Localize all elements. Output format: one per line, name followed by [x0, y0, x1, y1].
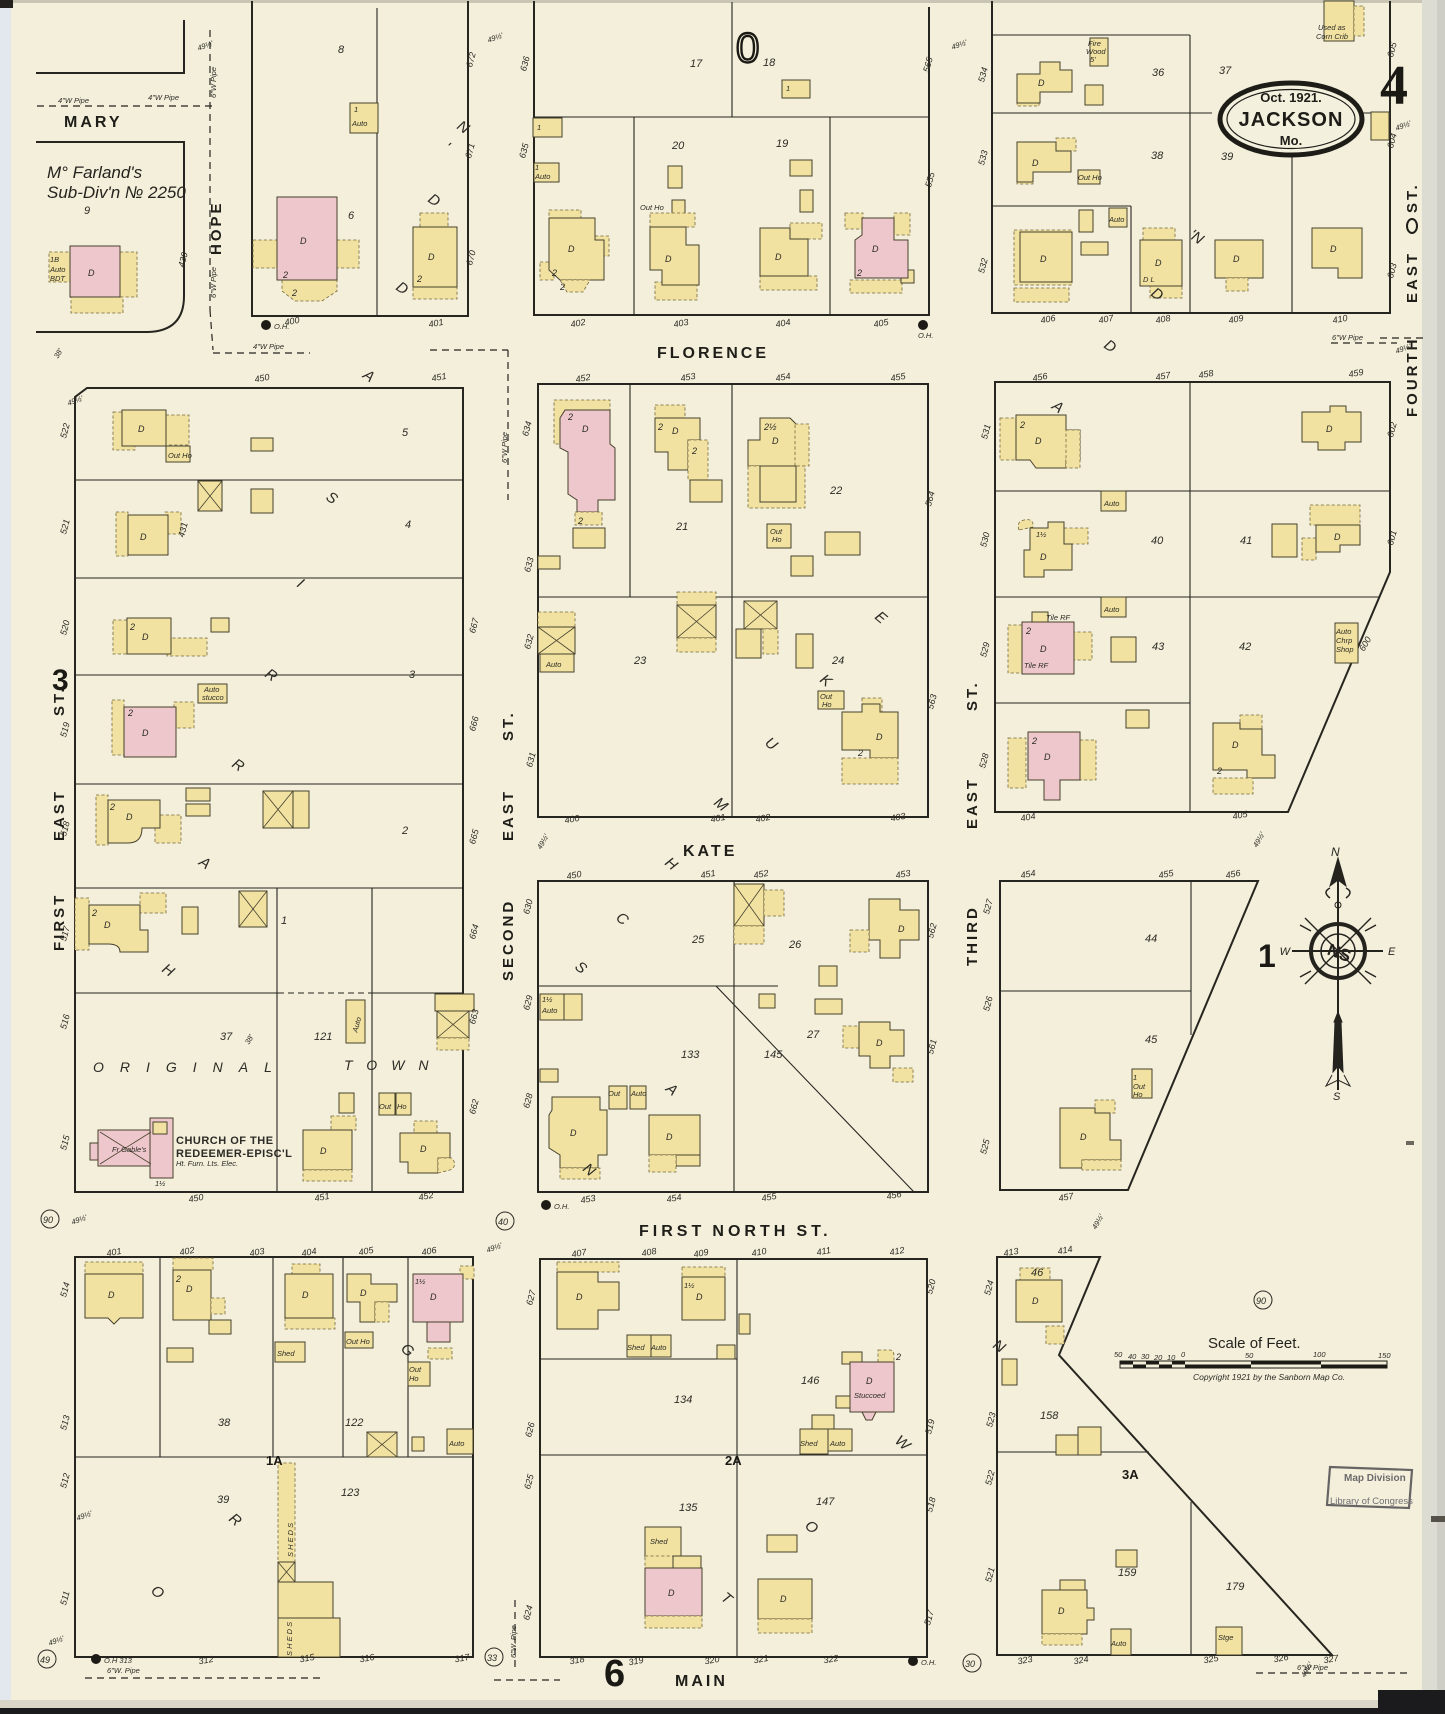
svg-text:1: 1 — [354, 105, 358, 114]
svg-text:2: 2 — [1019, 420, 1025, 430]
svg-text:D: D — [1334, 532, 1341, 542]
svg-text:D: D — [1155, 258, 1162, 268]
svg-text:D: D — [668, 1588, 675, 1598]
svg-text:19: 19 — [776, 138, 788, 150]
svg-text:50: 50 — [1245, 1351, 1254, 1360]
svg-text:40: 40 — [1128, 1352, 1137, 1361]
svg-text:FIRST NORTH ST.: FIRST NORTH ST. — [639, 1223, 832, 1240]
svg-text:2: 2 — [657, 422, 663, 432]
svg-text:Chrp: Chrp — [1336, 636, 1352, 645]
svg-text:1B: 1B — [50, 255, 59, 264]
svg-text:Ht. Furn. Lts. Elec.: Ht. Furn. Lts. Elec. — [176, 1159, 238, 1168]
svg-text:Auto: Auto — [1103, 605, 1119, 614]
svg-text:1½: 1½ — [1036, 530, 1047, 539]
svg-text:N: N — [1331, 845, 1340, 859]
svg-text:18: 18 — [763, 57, 776, 69]
svg-text:D: D — [866, 1376, 873, 1386]
svg-text:D: D — [772, 436, 779, 446]
svg-text:O.H.: O.H. — [554, 1202, 569, 1211]
svg-text:8: 8 — [338, 44, 345, 56]
svg-text:Tile RF: Tile RF — [1024, 661, 1049, 670]
svg-text:S: S — [1333, 1091, 1341, 1103]
svg-text:EAST: EAST — [1404, 251, 1421, 303]
svg-text:Out Ho: Out Ho — [640, 203, 664, 212]
svg-text:4"W Pipe: 4"W Pipe — [58, 96, 89, 105]
svg-text:Map Division: Map Division — [1344, 1473, 1406, 1484]
svg-text:Corn Crib: Corn Crib — [1316, 32, 1348, 41]
svg-text:Auto: Auto — [49, 265, 65, 274]
svg-text:S H E D S: S H E D S — [285, 1622, 294, 1656]
svg-text:Auto: Auto — [448, 1439, 464, 1448]
svg-text:6"W Pipe: 6"W Pipe — [1297, 1663, 1328, 1672]
svg-text:D: D — [1326, 424, 1333, 434]
svg-text:40: 40 — [1151, 535, 1164, 547]
svg-text:37: 37 — [220, 1031, 233, 1043]
svg-text:Out: Out — [379, 1102, 392, 1111]
svg-text:6: 6 — [604, 1653, 625, 1695]
svg-text:D: D — [872, 244, 879, 254]
svg-text:30: 30 — [965, 1659, 975, 1669]
svg-text:121: 121 — [314, 1031, 332, 1043]
svg-text:ST.: ST. — [500, 710, 517, 741]
svg-text:CHURCH OF THE: CHURCH OF THE — [176, 1135, 274, 1147]
svg-text:2: 2 — [1025, 626, 1031, 636]
svg-text:Auto: Auto — [541, 1006, 557, 1015]
svg-text:45: 45 — [1145, 1034, 1158, 1046]
svg-text:38: 38 — [218, 1417, 231, 1429]
svg-text:5': 5' — [1090, 55, 1096, 64]
svg-text:D: D — [428, 252, 435, 262]
svg-text:D: D — [1032, 158, 1039, 168]
svg-text:ST.: ST. — [964, 680, 981, 711]
svg-text:41: 41 — [1240, 535, 1252, 547]
svg-text:D: D — [1035, 436, 1042, 446]
svg-text:6: 6 — [348, 210, 355, 222]
svg-text:2: 2 — [282, 270, 288, 280]
svg-text:2: 2 — [401, 825, 408, 837]
svg-text:D: D — [780, 1594, 787, 1604]
svg-text:2: 2 — [857, 748, 863, 758]
svg-text:D: D — [876, 732, 883, 742]
svg-text:Ho: Ho — [1133, 1090, 1143, 1099]
svg-text:134: 134 — [674, 1394, 692, 1406]
svg-text:159: 159 — [1118, 1567, 1136, 1579]
svg-text:6"W. Pipe: 6"W. Pipe — [509, 1625, 518, 1658]
svg-text:MARY: MARY — [64, 114, 123, 131]
svg-text:D: D — [582, 424, 589, 434]
svg-text:Ho: Ho — [409, 1374, 419, 1383]
svg-text:2: 2 — [559, 282, 565, 292]
svg-text:6"W. Pipe: 6"W. Pipe — [107, 1666, 140, 1675]
svg-text:E: E — [1388, 946, 1396, 958]
svg-text:1A: 1A — [266, 1453, 283, 1468]
svg-text:Auto: Auto — [650, 1343, 666, 1352]
svg-text:39: 39 — [217, 1494, 229, 1506]
svg-text:O.H.: O.H. — [921, 1658, 936, 1667]
svg-text:4: 4 — [1380, 55, 1408, 117]
svg-text:TOWN: TOWN — [344, 1057, 443, 1073]
svg-text:Stge: Stge — [1218, 1633, 1233, 1642]
svg-text:D: D — [126, 812, 133, 822]
svg-text:133: 133 — [681, 1049, 700, 1061]
svg-text:D: D — [186, 1284, 193, 1294]
svg-text:27: 27 — [806, 1029, 820, 1041]
svg-text:D: D — [898, 924, 905, 934]
svg-text:D: D — [1233, 254, 1240, 264]
svg-text:Stuccoed: Stuccoed — [854, 1391, 886, 1400]
svg-text:90: 90 — [43, 1215, 53, 1225]
svg-text:6"W Pipe: 6"W Pipe — [209, 67, 218, 98]
svg-text:D: D — [665, 254, 672, 264]
svg-text:2: 2 — [895, 1352, 901, 1362]
svg-text:135: 135 — [679, 1502, 698, 1514]
svg-text:100: 100 — [1313, 1350, 1326, 1359]
svg-text:Auto: Auto — [534, 172, 550, 181]
svg-text:1½: 1½ — [415, 1277, 426, 1286]
svg-text:1: 1 — [786, 84, 790, 93]
svg-text:Out Ho: Out Ho — [1078, 173, 1102, 182]
svg-text:Copyright 1921 by the Sanborn: Copyright 1921 by the Sanborn Map Co. — [1193, 1372, 1345, 1382]
svg-text:W: W — [1280, 946, 1292, 958]
svg-text:Auto: Auto — [829, 1439, 845, 1448]
svg-text:JACKSON: JACKSON — [1239, 109, 1344, 131]
svg-text:Sub-Div'n № 2250: Sub-Div'n № 2250 — [47, 183, 186, 202]
svg-text:D: D — [576, 1292, 583, 1302]
svg-text:O.H.: O.H. — [918, 331, 933, 340]
svg-text:50: 50 — [1114, 1350, 1123, 1359]
svg-text:O.H 313: O.H 313 — [104, 1656, 133, 1665]
svg-text:Mo.: Mo. — [1280, 133, 1302, 148]
svg-text:BDT: BDT — [50, 274, 66, 283]
svg-text:MAIN: MAIN — [675, 1673, 728, 1690]
svg-text:HOPE: HOPE — [208, 200, 225, 255]
svg-text:2: 2 — [91, 908, 97, 918]
svg-text:6"W Pipe: 6"W Pipe — [500, 432, 509, 463]
svg-text:179: 179 — [1226, 1581, 1244, 1593]
svg-text:D: D — [430, 1292, 437, 1302]
svg-text:1: 1 — [537, 123, 541, 132]
svg-text:Auto: Auto — [351, 119, 367, 128]
svg-text:36: 36 — [1152, 67, 1165, 79]
svg-text:Fr Gable's: Fr Gable's — [112, 1145, 147, 1154]
svg-text:D: D — [876, 1038, 883, 1048]
svg-text:3: 3 — [409, 669, 416, 681]
svg-text:22: 22 — [829, 485, 842, 497]
svg-text:25: 25 — [691, 934, 705, 946]
svg-text:Used as: Used as — [1318, 23, 1346, 32]
svg-text:D: D — [88, 268, 95, 278]
svg-text:2½: 2½ — [763, 422, 777, 432]
svg-text:23: 23 — [633, 655, 647, 667]
svg-text:2: 2 — [127, 708, 133, 718]
svg-text:Auto: Auto — [630, 1089, 646, 1098]
svg-text:D: D — [1058, 1606, 1065, 1616]
svg-text:6"W Pipe: 6"W Pipe — [1332, 333, 1363, 342]
svg-text:43: 43 — [1152, 641, 1165, 653]
svg-text:49: 49 — [40, 1655, 50, 1665]
svg-text:D: D — [1330, 244, 1337, 254]
svg-text:D: D — [1044, 752, 1051, 762]
svg-text:D: D — [1038, 78, 1045, 88]
svg-text:30: 30 — [1141, 1352, 1150, 1361]
svg-text:Auto: Auto — [1335, 627, 1351, 636]
svg-text:D: D — [1040, 254, 1047, 264]
svg-text:2: 2 — [1216, 766, 1222, 776]
svg-text:stucco: stucco — [202, 693, 224, 702]
svg-text:2: 2 — [109, 802, 115, 812]
svg-text:D: D — [142, 728, 149, 738]
svg-text:Auto: Auto — [1103, 499, 1119, 508]
svg-text:122: 122 — [345, 1417, 363, 1429]
svg-text:2A: 2A — [725, 1453, 742, 1468]
svg-text:D L: D L — [1143, 275, 1155, 284]
svg-text:2: 2 — [416, 274, 422, 284]
svg-text:Shed: Shed — [627, 1343, 645, 1352]
svg-text:1½: 1½ — [155, 1179, 166, 1188]
svg-text:1: 1 — [1258, 938, 1276, 974]
svg-text:Library of Congress: Library of Congress — [1330, 1496, 1413, 1507]
svg-text:39: 39 — [1221, 151, 1233, 163]
svg-text:146: 146 — [801, 1375, 820, 1387]
svg-text:Out: Out — [409, 1365, 422, 1374]
svg-text:D: D — [302, 1290, 309, 1300]
svg-text:D: D — [1080, 1132, 1087, 1142]
svg-text:D: D — [1232, 740, 1239, 750]
svg-text:EAST: EAST — [964, 777, 981, 829]
svg-text:D: D — [568, 244, 575, 254]
svg-text:9: 9 — [84, 205, 90, 217]
svg-text:D: D — [570, 1128, 577, 1138]
svg-text:44: 44 — [1145, 933, 1157, 945]
svg-text:3: 3 — [52, 664, 69, 697]
svg-text:KATE: KATE — [683, 843, 737, 860]
svg-text:S H E D S: S H E D S — [286, 1523, 295, 1557]
svg-text:Out Ho: Out Ho — [346, 1337, 370, 1346]
svg-text:Shed: Shed — [650, 1537, 668, 1546]
svg-text:46: 46 — [1031, 1267, 1044, 1279]
svg-text:D: D — [142, 632, 149, 642]
svg-text:Out: Out — [608, 1089, 621, 1098]
svg-text:D: D — [775, 252, 782, 262]
svg-text:M° Farland's: M° Farland's — [47, 163, 143, 182]
svg-text:1½: 1½ — [542, 995, 553, 1004]
svg-text:D: D — [672, 426, 679, 436]
svg-text:SECOND: SECOND — [500, 899, 517, 981]
svg-text:2: 2 — [856, 268, 862, 278]
svg-text:D: D — [696, 1292, 703, 1302]
svg-text:2: 2 — [175, 1274, 181, 1284]
svg-text:4"W Pipe: 4"W Pipe — [148, 93, 179, 102]
svg-text:D: D — [320, 1146, 327, 1156]
svg-text:145: 145 — [764, 1049, 783, 1061]
svg-text:Shed: Shed — [277, 1349, 295, 1358]
svg-text:Scale of Feet.: Scale of Feet. — [1208, 1335, 1301, 1352]
svg-text:1: 1 — [535, 163, 539, 172]
svg-text:2: 2 — [129, 622, 135, 632]
svg-text:EAST: EAST — [500, 789, 517, 841]
svg-text:FLORENCE: FLORENCE — [657, 345, 769, 362]
svg-text:33: 33 — [487, 1653, 497, 1663]
svg-text:3A: 3A — [1122, 1467, 1139, 1482]
svg-text:6"W Pipe: 6"W Pipe — [209, 267, 218, 298]
svg-text:D: D — [1040, 552, 1047, 562]
svg-text:D: D — [104, 920, 111, 930]
svg-text:1½: 1½ — [684, 1281, 695, 1290]
svg-text:40: 40 — [498, 1217, 508, 1227]
svg-text:38: 38 — [1151, 150, 1164, 162]
svg-text:Oct. 1921.: Oct. 1921. — [1260, 90, 1321, 105]
svg-text:Auto: Auto — [1108, 215, 1124, 224]
svg-text:Auto: Auto — [545, 660, 561, 669]
svg-text:THIRD: THIRD — [964, 905, 981, 966]
svg-text:Shop: Shop — [1336, 645, 1354, 654]
svg-text:ORIGINAL: ORIGINAL — [93, 1059, 288, 1075]
svg-text:123: 123 — [341, 1487, 360, 1499]
svg-text:1: 1 — [1133, 1073, 1137, 1082]
svg-text:D: D — [666, 1132, 673, 1142]
svg-text:Ho: Ho — [397, 1102, 407, 1111]
svg-text:Ho: Ho — [822, 700, 832, 709]
svg-text:4"W Pipe: 4"W Pipe — [253, 342, 284, 351]
svg-text:D: D — [1032, 1296, 1039, 1306]
svg-text:D: D — [360, 1288, 367, 1298]
svg-text:150: 150 — [1378, 1351, 1391, 1360]
svg-text:D: D — [1040, 644, 1047, 654]
svg-text:2: 2 — [291, 288, 297, 298]
svg-text:21: 21 — [675, 521, 688, 533]
svg-text:Auto: Auto — [1110, 1639, 1126, 1648]
svg-text:Out Ho: Out Ho — [168, 451, 192, 460]
svg-text:24: 24 — [831, 655, 844, 667]
svg-text:2: 2 — [577, 516, 583, 526]
svg-text:Shed: Shed — [800, 1439, 818, 1448]
svg-text:5: 5 — [402, 427, 409, 439]
svg-text:158: 158 — [1040, 1410, 1059, 1422]
svg-text:O.H.: O.H. — [274, 322, 289, 331]
svg-text:ST.: ST. — [1404, 182, 1421, 213]
svg-text:D: D — [300, 236, 307, 246]
svg-text:D: D — [138, 424, 145, 434]
svg-text:4: 4 — [405, 519, 411, 531]
svg-text:Tile RF: Tile RF — [1046, 613, 1071, 622]
svg-text:17: 17 — [690, 58, 703, 70]
svg-text:D: D — [140, 532, 147, 542]
svg-text:Ho: Ho — [772, 535, 782, 544]
svg-text:26: 26 — [788, 939, 802, 951]
svg-text:D: D — [108, 1290, 115, 1300]
svg-text:2: 2 — [691, 446, 697, 456]
svg-text:0: 0 — [736, 24, 759, 71]
svg-text:37: 37 — [1219, 65, 1232, 77]
svg-text:D: D — [420, 1144, 427, 1154]
svg-text:20: 20 — [671, 140, 685, 152]
svg-text:147: 147 — [816, 1496, 835, 1508]
svg-text:42: 42 — [1239, 641, 1251, 653]
svg-text:90: 90 — [1256, 1296, 1266, 1306]
svg-text:2: 2 — [551, 268, 557, 278]
svg-text:1: 1 — [281, 915, 287, 927]
svg-text:2: 2 — [567, 412, 573, 422]
svg-text:2: 2 — [1031, 736, 1037, 746]
